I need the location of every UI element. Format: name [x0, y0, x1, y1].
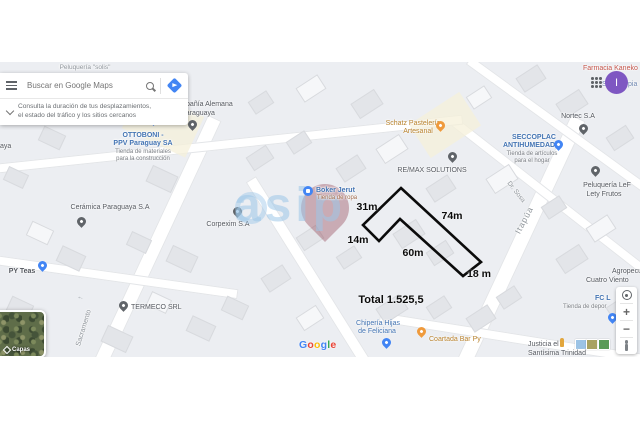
chevron-down-icon[interactable]	[6, 106, 14, 114]
search-icon[interactable]	[146, 82, 154, 90]
directions-icon[interactable]	[167, 78, 183, 94]
map-controls: + −	[616, 287, 637, 354]
search-row	[0, 73, 188, 98]
measurement-total: Total 1.525,5	[358, 294, 423, 306]
google-maps-screenshot: asip Peluquería "solis" aya OTTOBONI - P…	[0, 0, 640, 427]
google-apps-grid-icon[interactable]	[591, 77, 602, 88]
measurement-18m: 18 m	[467, 268, 491, 280]
layers-icon	[3, 346, 11, 354]
search-card: Consulta la duración de tus desplazamien…	[0, 73, 188, 125]
map-viewport[interactable]: asip Peluquería "solis" aya OTTOBONI - P…	[0, 62, 640, 357]
zoom-out-button[interactable]: −	[616, 321, 637, 337]
suggestion-row[interactable]: Consulta la duración de tus desplazamien…	[0, 98, 188, 125]
pegman-button[interactable]	[616, 338, 637, 354]
layers-thumbnail[interactable]: Capas	[0, 310, 46, 357]
menu-icon[interactable]	[6, 81, 17, 90]
account-avatar[interactable]: I	[605, 71, 628, 94]
layers-label: Capas	[4, 347, 30, 353]
google-logo: Google	[299, 339, 336, 351]
my-location-button[interactable]	[616, 287, 637, 303]
search-input[interactable]	[25, 80, 146, 91]
crosshair-icon	[622, 290, 632, 300]
divider	[160, 78, 161, 94]
zoom-in-button[interactable]: +	[616, 304, 637, 320]
suggestion-text: Consulta la duración de tus desplazamien…	[18, 103, 151, 120]
measurement-14m: 14m	[347, 234, 368, 246]
measurement-31m: 31m	[356, 201, 377, 213]
measurement-74m: 74m	[441, 210, 462, 222]
measurement-60m: 60m	[402, 247, 423, 259]
pegman-icon	[622, 340, 631, 352]
